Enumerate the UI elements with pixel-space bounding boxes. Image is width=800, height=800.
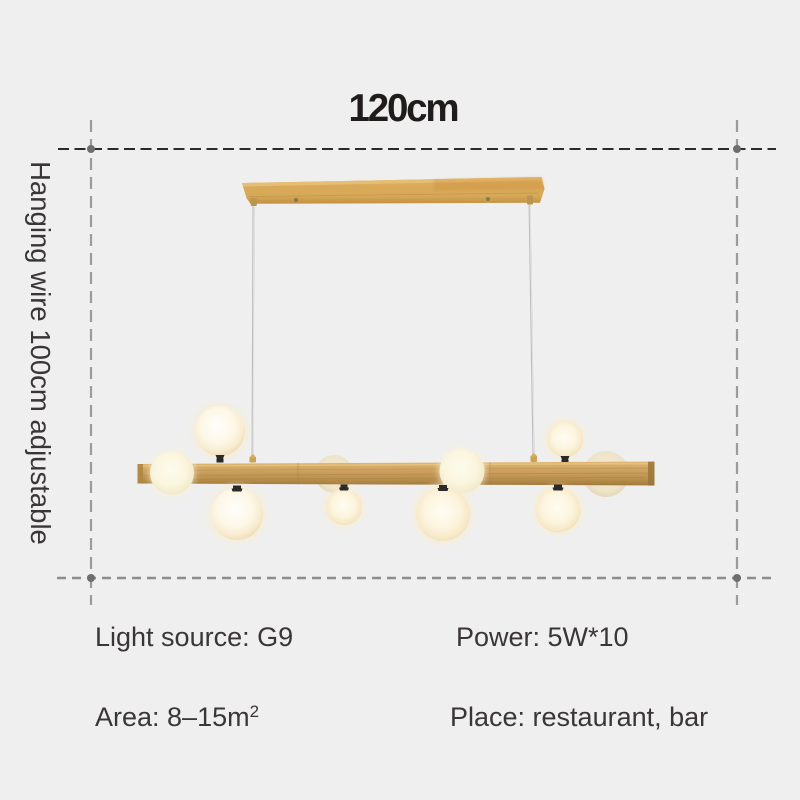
svg-text:Hanging wire 100cm adjustable: Hanging wire 100cm adjustable xyxy=(25,161,56,545)
svg-text:Power: 5W*10: Power: 5W*10 xyxy=(456,622,629,652)
svg-text:Area: 8–15m2: Area: 8–15m2 xyxy=(95,702,259,732)
svg-text:Light source: G9: Light source: G9 xyxy=(95,622,293,652)
svg-text:Place: restaurant, bar: Place: restaurant, bar xyxy=(450,702,708,732)
svg-text:120cm: 120cm xyxy=(349,87,458,130)
